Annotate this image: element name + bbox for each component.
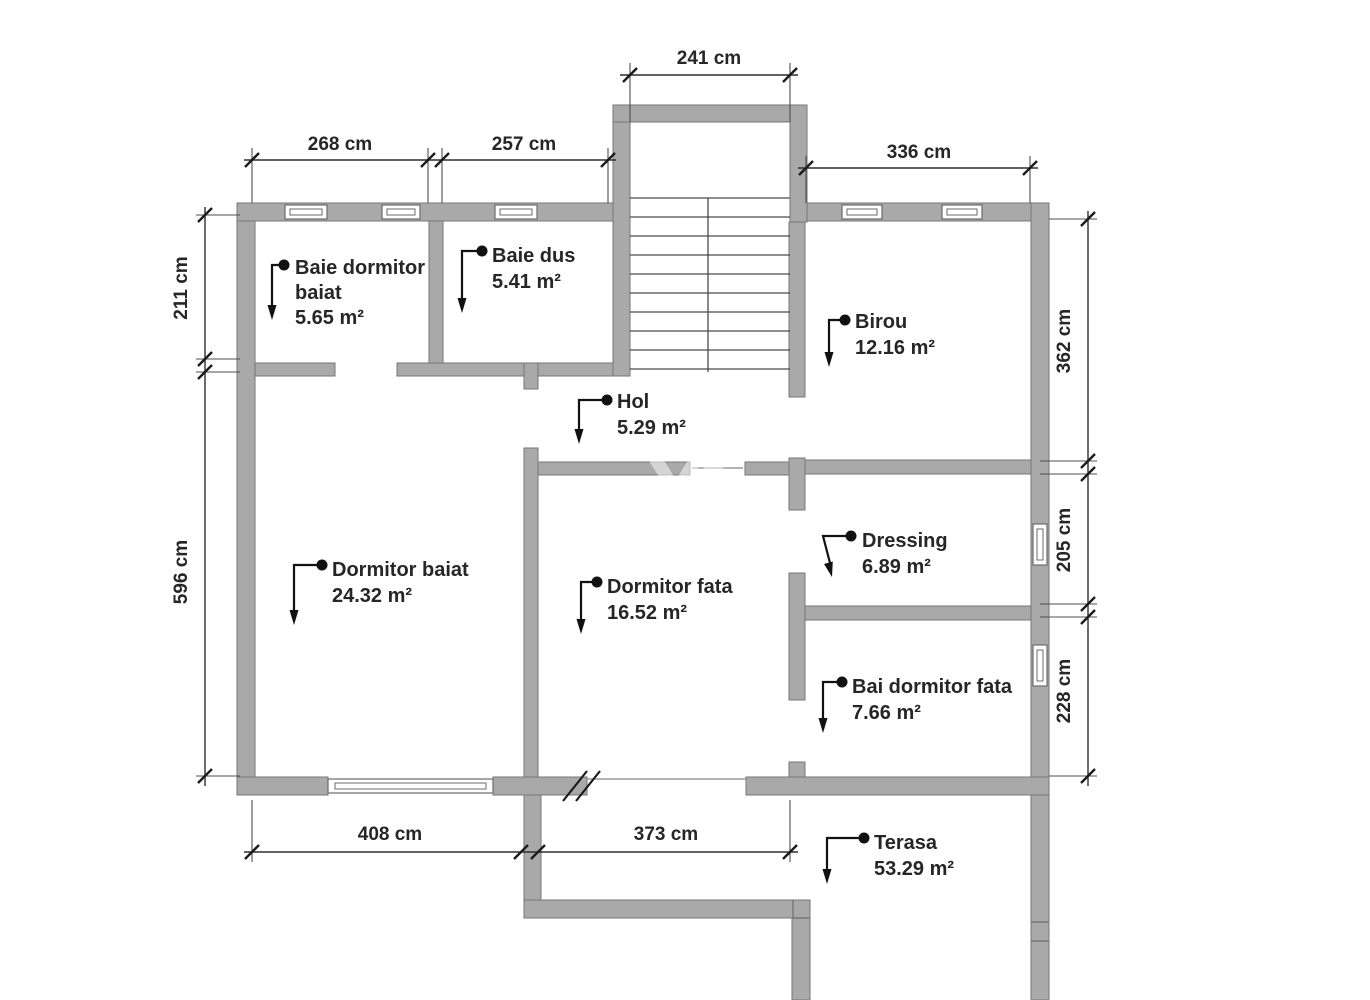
room-name: Dressing [862, 530, 948, 552]
wall-dressing-bai-divider [805, 606, 1031, 620]
dim-label: 211 cm [171, 256, 192, 319]
wall-exterior-bottom-b [493, 777, 587, 795]
window-birou-2 [942, 205, 982, 219]
dim-label: 241 cm [677, 48, 741, 69]
room-bai-dormitor-fata-floor [805, 620, 1031, 777]
dim-label: 596 cm [171, 540, 192, 604]
dim-top-336: 336 cm [798, 142, 1038, 203]
wall-exterior-bottom-a [237, 777, 328, 795]
wall-bath-divider [429, 221, 443, 363]
wall-exterior-right [1031, 203, 1049, 795]
room-name: Dormitor baiat [332, 559, 469, 581]
room-area: 12.16 m² [855, 337, 935, 359]
dim-label: 228 cm [1054, 659, 1075, 723]
room-area: 7.66 m² [852, 702, 921, 724]
dim-label: 268 cm [308, 134, 372, 155]
room-name: Baie dormitor [295, 257, 425, 279]
window-baie-dus [495, 205, 537, 219]
room-name: Bai dormitor fata [852, 676, 1013, 698]
wall-center-vertical-b [789, 458, 805, 510]
window-baie-dormitor-baiat-2 [382, 205, 420, 219]
wall-terasa-south [524, 900, 810, 918]
wall-exterior-left [237, 203, 255, 795]
wall-exterior-bottom-c [746, 777, 1049, 795]
dim-label: 257 cm [492, 134, 556, 155]
room-area: 16.52 m² [607, 602, 687, 624]
wall-center-vertical-d [789, 762, 805, 777]
window-baie-dormitor-baiat-1 [285, 205, 327, 219]
wall-hol-fata-b [745, 462, 789, 475]
wall-baths-south-b [397, 363, 613, 376]
wall-stair-top [613, 105, 807, 122]
room-area: 5.41 m² [492, 271, 561, 293]
room-name: Dormitor fata [607, 576, 733, 598]
room-name: Terasa [874, 832, 938, 854]
dim-top-268-257: 268 cm 257 cm [244, 134, 616, 203]
window-birou-1 [842, 205, 882, 219]
wall-center-vertical-c [789, 573, 805, 700]
wall-baths-south-a [255, 363, 335, 376]
window-bai-dormitor-fata [1033, 645, 1047, 686]
dim-left-211-596: 211 cm 596 cm [171, 207, 240, 786]
room-stairwell-floor [630, 122, 790, 372]
dim-label: 362 cm [1054, 309, 1075, 373]
room-name: Hol [617, 391, 649, 413]
wall-dormitor-divider-stub [524, 363, 538, 389]
dim-label: 205 cm [1054, 508, 1075, 572]
room-area: 6.89 m² [862, 556, 931, 578]
room-name: baiat [295, 282, 342, 304]
wall-center-vertical-a [789, 222, 805, 397]
dim-label: 336 cm [887, 142, 951, 163]
room-dormitor-fata-floor [538, 475, 789, 777]
room-area: 5.65 m² [295, 307, 364, 329]
wall-birou-dressing-divider [805, 460, 1031, 474]
wall-terasa-step [792, 918, 810, 1000]
room-baie-dormitor-baiat-floor [255, 221, 429, 363]
floor-plan-svg: 241 cm 268 cm 257 cm 336 cm [0, 0, 1370, 1000]
window-dressing [1033, 524, 1047, 565]
wall-stair-left [613, 105, 630, 376]
window-dormitor-baiat [328, 779, 493, 793]
room-area: 5.29 m² [617, 417, 686, 439]
wall-dormitor-divider [524, 448, 538, 777]
wall-stair-right [790, 105, 807, 222]
dim-label: 408 cm [358, 824, 422, 845]
dim-label: 373 cm [634, 824, 698, 845]
room-area: 24.32 m² [332, 585, 412, 607]
room-terasa-floor [541, 795, 1031, 900]
room-name: Birou [855, 311, 907, 333]
wall-terasa-right [1031, 795, 1049, 1000]
floor-plan: 241 cm 268 cm 257 cm 336 cm [0, 0, 1370, 1000]
room-name: Baie dus [492, 245, 575, 267]
room-area: 53.29 m² [874, 858, 954, 880]
